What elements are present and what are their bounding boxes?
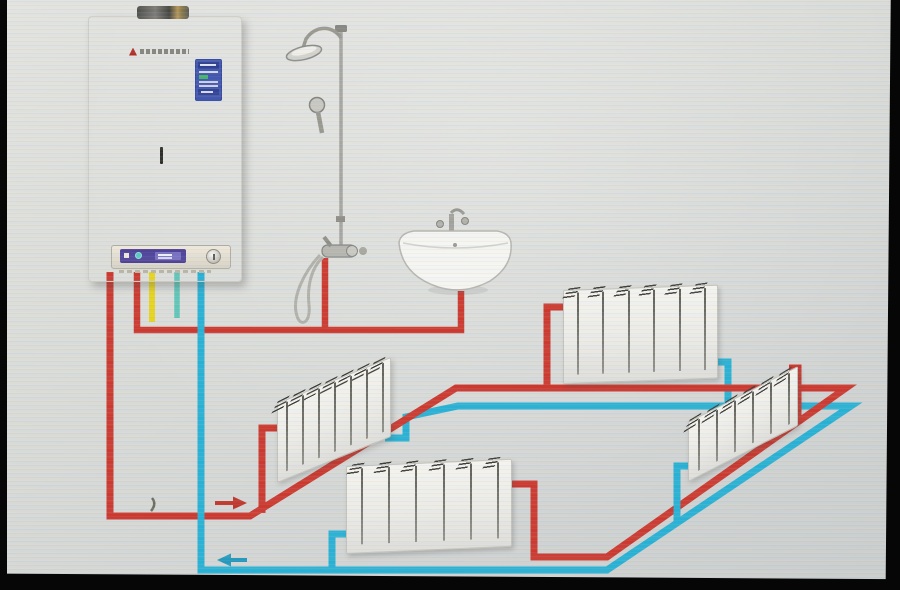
faucet-handle-right bbox=[462, 218, 469, 225]
burner-icon bbox=[124, 253, 129, 258]
brand-logo bbox=[129, 47, 189, 56]
energy-label-row bbox=[199, 71, 218, 73]
faucet-spout bbox=[451, 210, 464, 214]
scan-border-left bbox=[0, 0, 7, 590]
brand-wordmark bbox=[140, 49, 189, 54]
hand-shower-head bbox=[310, 98, 325, 113]
energy-label-footer bbox=[198, 89, 219, 95]
mode-icon bbox=[135, 252, 142, 259]
brand-logo-mark bbox=[129, 48, 137, 56]
faucet-handle-left bbox=[437, 221, 444, 228]
mixer-lever bbox=[324, 237, 331, 246]
shower-set bbox=[285, 25, 367, 322]
case-seam-mark bbox=[160, 147, 163, 164]
lcd-display bbox=[120, 249, 186, 263]
basin-bowl bbox=[399, 231, 511, 290]
mixer-wall-elbow bbox=[359, 247, 367, 255]
basin-tap-hole bbox=[453, 243, 457, 247]
mixer-knob bbox=[347, 246, 358, 257]
hand-shower-handle bbox=[318, 112, 322, 133]
energy-label-header bbox=[198, 62, 219, 69]
wall-hung-boiler bbox=[88, 16, 242, 282]
panel-caption-text bbox=[119, 270, 211, 273]
scanned-diagram-page bbox=[0, 0, 900, 590]
washbasin bbox=[399, 210, 511, 295]
energy-label-row bbox=[199, 85, 218, 87]
boiler-control-panel bbox=[111, 245, 231, 269]
energy-label-row bbox=[199, 81, 218, 83]
control-knob bbox=[206, 249, 221, 264]
shower-hose bbox=[296, 255, 323, 322]
faucet-body bbox=[449, 214, 454, 231]
flue-pipe bbox=[137, 6, 189, 19]
energy-label-chip bbox=[199, 75, 208, 79]
energy-label bbox=[195, 59, 222, 101]
rail-bracket bbox=[336, 216, 345, 222]
lcd-digits bbox=[155, 252, 181, 260]
